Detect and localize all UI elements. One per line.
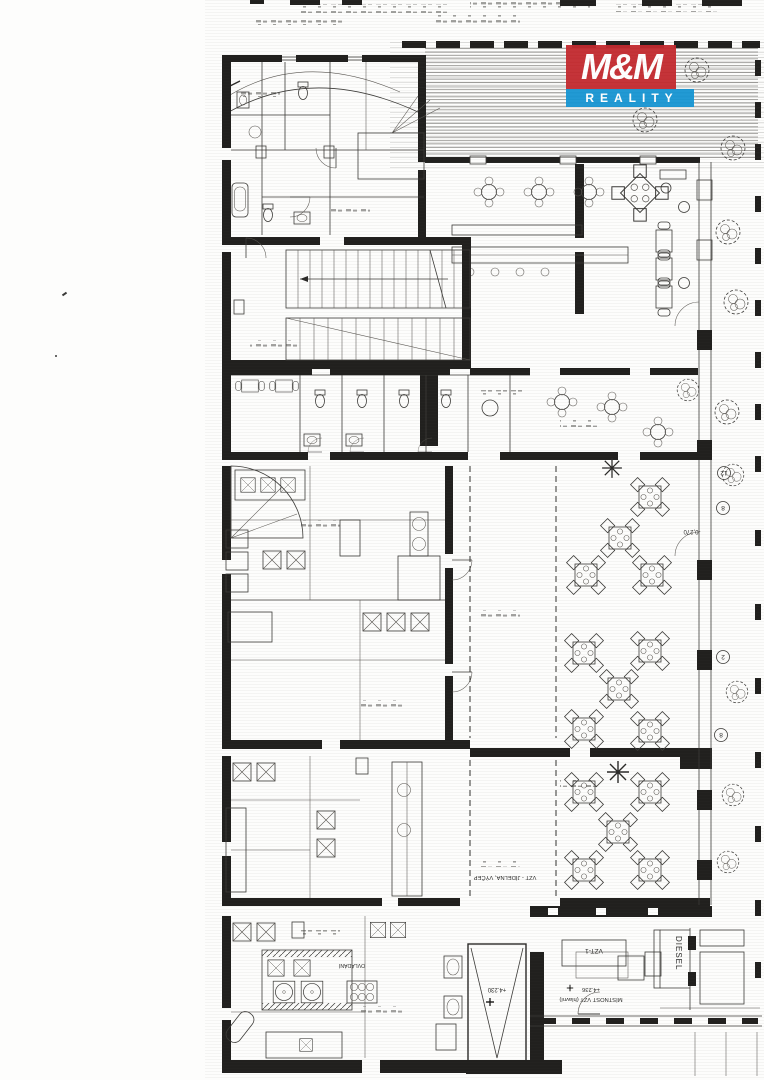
vzt-unit-label: VZT-1: [585, 947, 603, 954]
skylight-shaft: +4.230: [466, 944, 562, 1074]
axis-marker: 2: [717, 651, 730, 664]
vzt-room: VZT-1 +4.236 MÍSTNOST VZT (hlavní): [530, 906, 712, 1014]
right-boundary-dashes: [755, 60, 761, 978]
scanned-floorplan-page: 12 8 2 8 -0,270: [0, 0, 764, 1080]
ramp-fan: [231, 466, 303, 538]
axis-marker-label: 2: [721, 653, 725, 660]
terrace-elevation-label: -0,270: [683, 528, 701, 534]
axis-marker-label: 8: [721, 504, 725, 511]
diesel-label: DIESEL: [674, 936, 683, 970]
wc-block: [222, 368, 698, 452]
logo-reality-block: REALITY: [566, 89, 694, 107]
kitchen-upper: [226, 466, 472, 740]
vzt-room-label: MÍSTNOST VZT (hlavní): [559, 996, 622, 1003]
axis-marker: 8: [715, 729, 728, 742]
shaft-elevation-label: +4.230: [487, 986, 506, 992]
floor-plan-drawing: 12 8 2 8 -0,270: [0, 0, 764, 1080]
logo-reality-text: REALITY: [585, 91, 678, 105]
dining-hall: [470, 465, 710, 909]
axis-marker: 8: [717, 502, 730, 515]
control-note-label: OVLÁDÁNÍ: [338, 962, 365, 969]
scan-speck: [55, 355, 57, 357]
main-horizontal-walls: [222, 452, 712, 783]
mm-reality-logo: M&M REALITY: [566, 45, 694, 107]
kitchen-bottom: OVLÁDÁNÍ: [222, 916, 466, 1073]
vzt-elev-label: +4.236: [582, 986, 600, 992]
logo-mm-block: M&M: [566, 45, 676, 89]
diesel-room: DIESEL: [654, 930, 690, 988]
staircase: [222, 237, 471, 369]
logo-mm-text: M&M: [581, 46, 661, 88]
window-band: 12 8 2 8 -0,270: [675, 162, 748, 905]
duct-note-label: VZT - JÍDELNA, VÝČEP: [474, 874, 537, 881]
axis-marker-label: 8: [719, 731, 723, 738]
kitchen-lower: VZT - JÍDELNA, VÝČEP: [222, 756, 536, 906]
